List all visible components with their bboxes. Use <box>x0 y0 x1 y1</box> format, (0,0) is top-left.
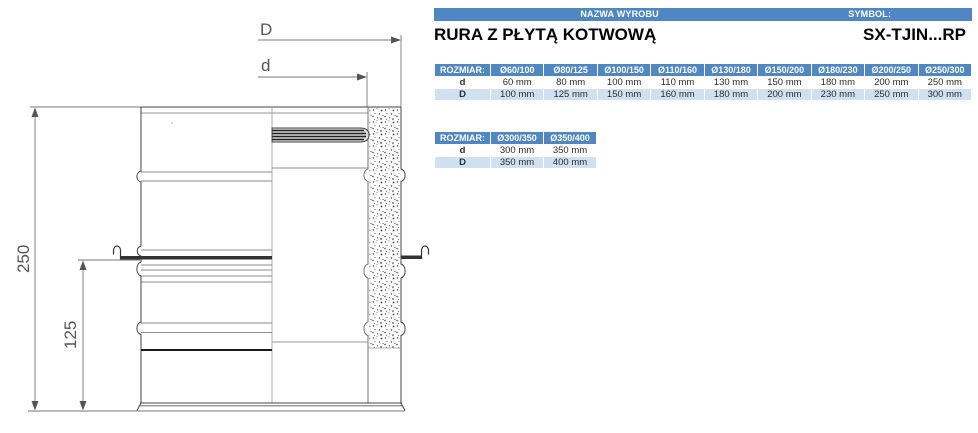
header-cell: ROZMIAR: <box>435 64 491 77</box>
size-table-2: ROZMIAR: Ø300/350 Ø350/400 d 300 mm 350 … <box>434 131 597 169</box>
row-label: d <box>435 77 491 89</box>
product-info-panel: NAZWA WYROBU SYMBOL: RURA Z PŁYTĄ KOTWOW… <box>434 8 972 169</box>
header-cell: Ø200/250 <box>865 64 918 77</box>
value-cell: 350 mm <box>491 157 544 169</box>
anchor-plate-left-hook <box>114 246 121 260</box>
value-cell: 350 mm <box>544 145 597 157</box>
row-label: D <box>435 157 491 169</box>
dimension-annotations: D d 250 125 <box>14 20 405 411</box>
dim-label-total-height: 250 <box>14 245 33 273</box>
value-cell: 100 mm <box>491 89 544 101</box>
value-cell: 160 mm <box>651 89 704 101</box>
header-cell: Ø110/160 <box>651 64 704 77</box>
value-cell: 125 mm <box>544 89 597 101</box>
value-cell: 130 mm <box>704 77 757 89</box>
table-row-d: d 300 mm 350 mm <box>435 145 597 157</box>
drawing-speck <box>171 122 173 124</box>
product-title-row: RURA Z PŁYTĄ KOTWOWĄ SX-TJIN...RP <box>434 25 972 47</box>
dim-arrow-250-top <box>32 108 39 118</box>
row-label: d <box>435 145 491 157</box>
value-cell: 60 mm <box>491 77 544 89</box>
dim-label-inner-diameter: d <box>261 56 270 75</box>
value-cell: 150 mm <box>758 77 811 89</box>
insulation-stipple <box>370 108 401 348</box>
header-cell: Ø100/150 <box>597 64 650 77</box>
value-cell: 110 mm <box>651 77 704 89</box>
symbol-column-label: SYMBOL: <box>848 9 891 19</box>
value-cell: 250 mm <box>918 77 972 89</box>
value-cell: 150 mm <box>597 89 650 101</box>
header-cell: ROZMIAR: <box>435 132 491 145</box>
dim-arrow-D <box>391 37 401 44</box>
size-table-1: ROZMIAR: Ø60/100 Ø80/125 Ø100/150 Ø110/1… <box>434 63 972 101</box>
header-cell: Ø130/180 <box>704 64 757 77</box>
value-cell: 180 mm <box>811 77 864 89</box>
value-cell: 300 mm <box>491 145 544 157</box>
technical-drawing: D d 250 125 <box>0 0 434 433</box>
table-row-D: D 100 mm 125 mm 150 mm 160 mm 180 mm 200… <box>435 89 972 101</box>
value-cell: 100 mm <box>597 77 650 89</box>
anchor-plate-right <box>401 256 422 260</box>
value-cell: 200 mm <box>758 89 811 101</box>
anchor-plate-left <box>120 256 272 260</box>
dim-label-outer-diameter: D <box>260 20 272 39</box>
header-cell: Ø60/100 <box>491 64 544 77</box>
value-cell: 200 mm <box>865 77 918 89</box>
header-cell: Ø150/200 <box>758 64 811 77</box>
dim-arrow-250-bottom <box>32 401 39 411</box>
product-name: RURA Z PŁYTĄ KOTWOWĄ <box>434 25 656 45</box>
name-column-label: NAZWA WYROBU <box>434 9 805 19</box>
table-header-row: ROZMIAR: Ø300/350 Ø350/400 <box>435 132 597 145</box>
catalog-page: D d 250 125 <box>0 0 978 433</box>
dim-arrow-d <box>357 74 367 81</box>
insulation-inner-wall <box>364 107 368 403</box>
header-cell: Ø300/350 <box>491 132 544 145</box>
dim-arrow-125-bottom <box>80 401 87 411</box>
value-cell: 250 mm <box>865 89 918 101</box>
header-cell: Ø250/300 <box>918 64 972 77</box>
anchor-plate-right-hook <box>422 246 429 259</box>
value-cell: 80 mm <box>544 77 597 89</box>
product-symbol: SX-TJIN...RP <box>863 25 972 45</box>
dim-label-plate-height: 125 <box>61 321 80 349</box>
header-cell: Ø350/400 <box>544 132 597 145</box>
table-title-bar: NAZWA WYROBU SYMBOL: <box>434 8 972 21</box>
header-cell: Ø180/230 <box>811 64 864 77</box>
header-cell: Ø80/125 <box>544 64 597 77</box>
row-label: D <box>435 89 491 101</box>
value-cell: 300 mm <box>918 89 972 101</box>
value-cell: 230 mm <box>811 89 864 101</box>
value-cell: 400 mm <box>544 157 597 169</box>
value-cell: 180 mm <box>704 89 757 101</box>
table-row-d: d 60 mm 80 mm 100 mm 110 mm 130 mm 150 m… <box>435 77 972 89</box>
table-header-row: ROZMIAR: Ø60/100 Ø80/125 Ø100/150 Ø110/1… <box>435 64 972 77</box>
table-row-D: D 350 mm 400 mm <box>435 157 597 169</box>
dim-arrow-125-top <box>80 261 87 271</box>
